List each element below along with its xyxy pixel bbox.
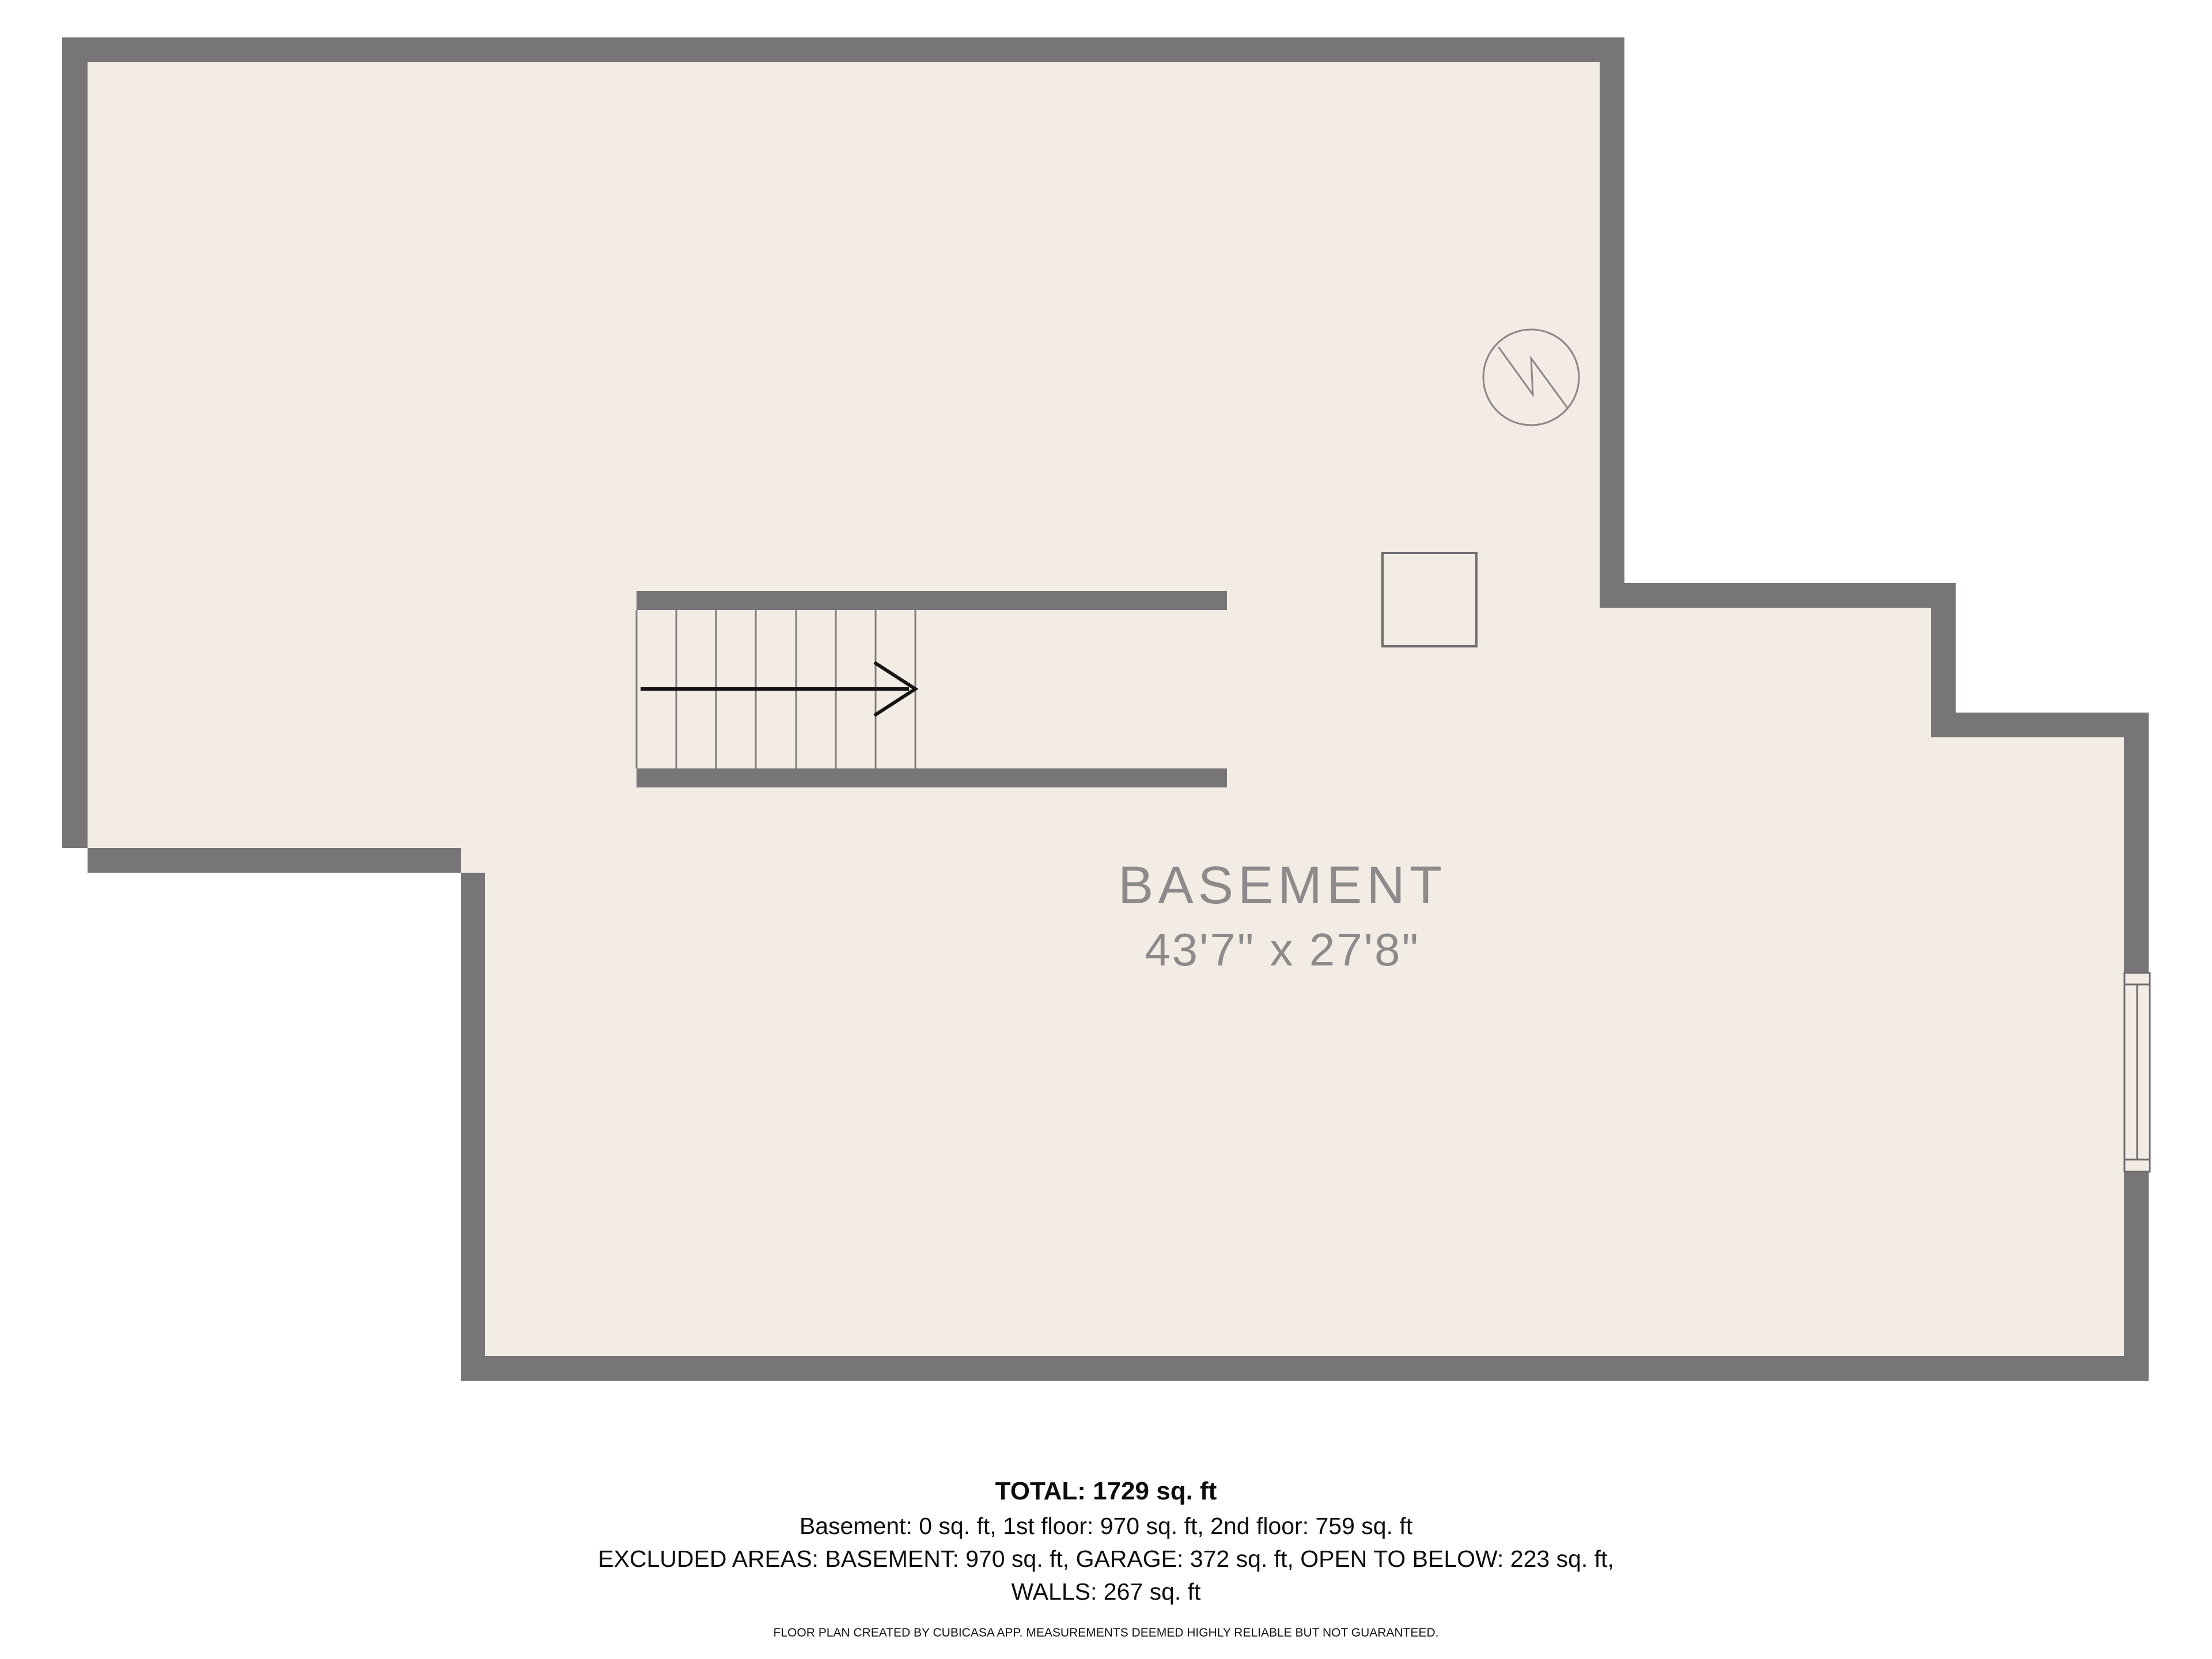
summary-excluded-areas: EXCLUDED AREAS: BASEMENT: 970 sq. ft, GA… bbox=[0, 1543, 2212, 1574]
stair-stringer-bottom bbox=[637, 768, 1227, 787]
window-icon bbox=[2124, 973, 2150, 1172]
room-dimensions: 43'7" x 27'8" bbox=[1145, 924, 1420, 975]
disclaimer-text: FLOOR PLAN CREATED BY CUBICASA APP. MEAS… bbox=[0, 1626, 2212, 1641]
summary-total: TOTAL: 1729 sq. ft bbox=[0, 1476, 2212, 1507]
summary-walls: WALLS: 267 sq. ft bbox=[0, 1576, 2212, 1607]
room-label: BASEMENT bbox=[1118, 856, 1446, 915]
stair-stringer-top bbox=[637, 591, 1227, 610]
summary-floors: Basement: 0 sq. ft, 1st floor: 970 sq. f… bbox=[0, 1510, 2212, 1541]
floor-plan-canvas: BASEMENT 43'7" x 27'8" bbox=[0, 0, 2212, 1659]
floor-area bbox=[88, 62, 2124, 1356]
floor-plan-page: BASEMENT 43'7" x 27'8" TOTAL: 1729 sq. f… bbox=[0, 0, 2212, 1659]
